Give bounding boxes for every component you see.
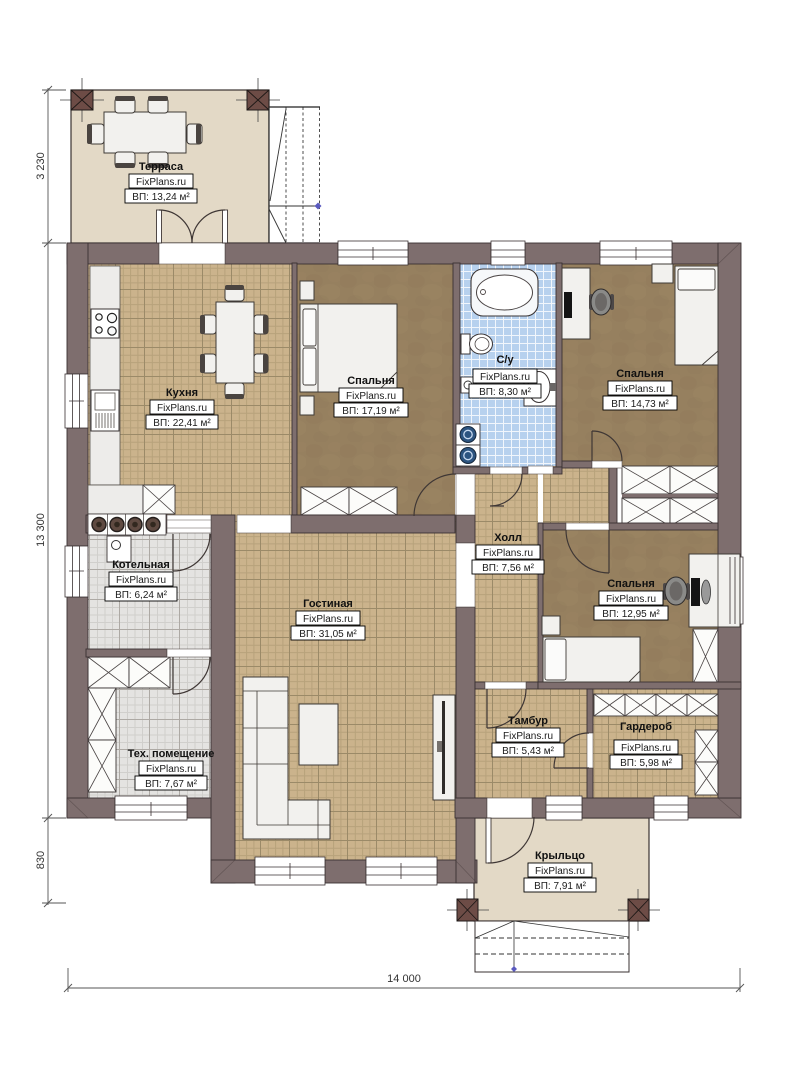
svg-text:Крыльцо: Крыльцо xyxy=(535,850,585,862)
svg-text:FixPlans.ru: FixPlans.ru xyxy=(606,594,656,605)
svg-text:FixPlans.ru: FixPlans.ru xyxy=(503,731,553,742)
svg-text:Спальня: Спальня xyxy=(616,368,664,380)
svg-text:ВП: 12,95 м²: ВП: 12,95 м² xyxy=(602,609,660,620)
svg-text:ВП: 17,19 м²: ВП: 17,19 м² xyxy=(342,406,400,417)
svg-text:С/у: С/у xyxy=(496,354,514,366)
svg-text:FixPlans.ru: FixPlans.ru xyxy=(146,764,196,775)
svg-text:ВП: 22,41 м²: ВП: 22,41 м² xyxy=(153,418,211,429)
svg-text:3 230: 3 230 xyxy=(35,152,47,180)
svg-text:FixPlans.ru: FixPlans.ru xyxy=(303,614,353,625)
svg-text:FixPlans.ru: FixPlans.ru xyxy=(483,548,533,559)
svg-text:FixPlans.ru: FixPlans.ru xyxy=(615,384,665,395)
svg-text:ВП: 6,24 м²: ВП: 6,24 м² xyxy=(115,590,168,601)
svg-text:Тех. помещение: Тех. помещение xyxy=(128,748,215,760)
svg-text:ВП: 31,05 м²: ВП: 31,05 м² xyxy=(299,629,357,640)
svg-text:FixPlans.ru: FixPlans.ru xyxy=(621,743,671,754)
svg-text:FixPlans.ru: FixPlans.ru xyxy=(157,403,207,414)
svg-text:Гостиная: Гостиная xyxy=(303,598,353,610)
svg-text:FixPlans.ru: FixPlans.ru xyxy=(346,391,396,402)
svg-text:ВП: 7,56 м²: ВП: 7,56 м² xyxy=(482,563,535,574)
svg-text:Тамбур: Тамбур xyxy=(508,715,548,727)
svg-text:Спальня: Спальня xyxy=(607,578,655,590)
svg-text:ВП: 7,67 м²: ВП: 7,67 м² xyxy=(145,779,198,790)
svg-text:Холл: Холл xyxy=(494,532,522,544)
svg-text:ВП: 5,98 м²: ВП: 5,98 м² xyxy=(620,758,673,769)
svg-text:830: 830 xyxy=(35,851,47,869)
svg-text:Гардероб: Гардероб xyxy=(620,721,672,733)
svg-text:FixPlans.ru: FixPlans.ru xyxy=(535,866,585,877)
svg-text:FixPlans.ru: FixPlans.ru xyxy=(136,177,186,188)
svg-text:ВП: 14,73 м²: ВП: 14,73 м² xyxy=(611,399,669,410)
svg-text:FixPlans.ru: FixPlans.ru xyxy=(480,372,530,383)
svg-text:13 300: 13 300 xyxy=(35,513,47,547)
svg-text:Кухня: Кухня xyxy=(166,387,198,399)
svg-text:ВП: 7,91 м²: ВП: 7,91 м² xyxy=(534,881,587,892)
svg-text:ВП: 5,43 м²: ВП: 5,43 м² xyxy=(502,746,555,757)
svg-text:Спальня: Спальня xyxy=(347,375,395,387)
svg-text:FixPlans.ru: FixPlans.ru xyxy=(116,575,166,586)
svg-text:14 000: 14 000 xyxy=(387,973,421,985)
svg-text:ВП: 13,24 м²: ВП: 13,24 м² xyxy=(132,192,190,203)
svg-text:Котельная: Котельная xyxy=(112,559,170,571)
svg-text:Терраса: Терраса xyxy=(139,161,184,173)
svg-text:ВП: 8,30 м²: ВП: 8,30 м² xyxy=(479,387,532,398)
